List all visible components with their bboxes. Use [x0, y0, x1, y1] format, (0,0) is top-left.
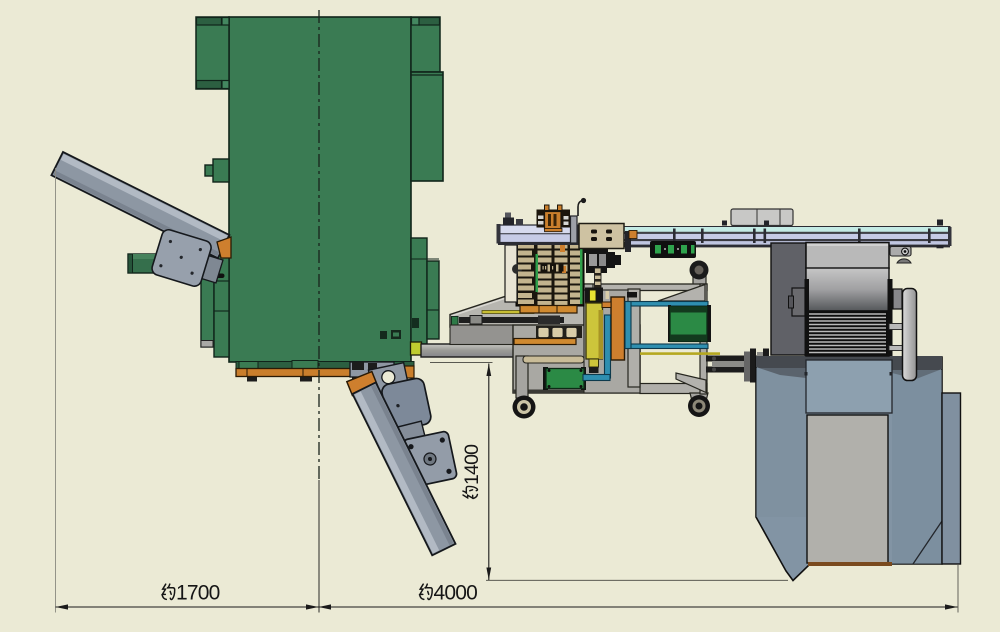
svg-text:4000: 4000: [434, 582, 478, 605]
svg-text:1400: 1400: [461, 444, 483, 485]
svg-text:1700: 1700: [176, 582, 220, 605]
